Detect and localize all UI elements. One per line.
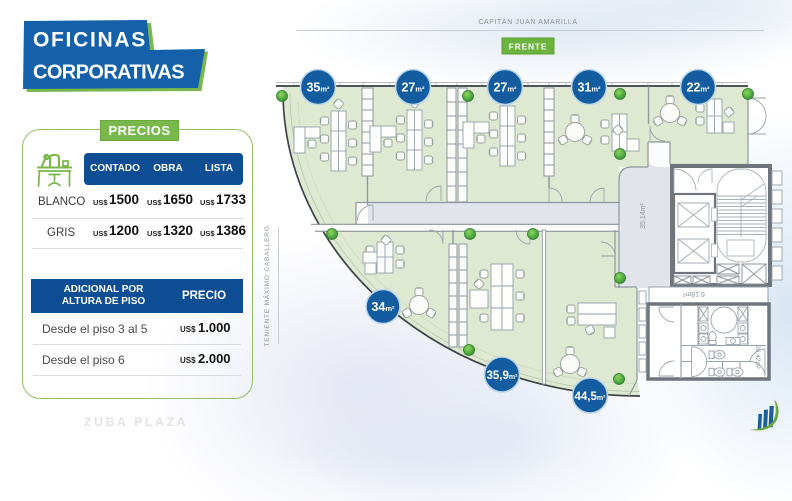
svg-text:CAPITÁN JUAN AMARILLA: CAPITÁN JUAN AMARILLA (478, 17, 577, 26)
svg-text:6,18m²: 6,18m² (682, 290, 704, 297)
svg-text:26,42m²: 26,42m² (754, 345, 761, 370)
svg-text:35,14m²: 35,14m² (640, 202, 647, 228)
svg-text:FRENTE: FRENTE (509, 42, 548, 52)
svg-text:TENIENTE MÁXIMO CABALLERO: TENIENTE MÁXIMO CABALLERO (262, 225, 271, 346)
